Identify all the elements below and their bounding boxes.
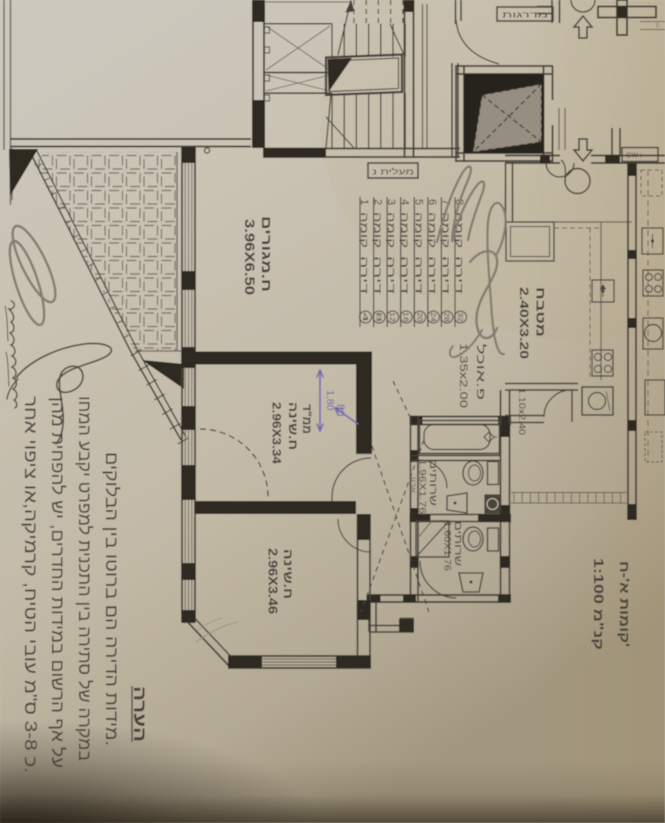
svg-text:דירה: דירה [453,256,464,295]
svg-text:24: 24 [429,312,438,322]
svg-text:קומה: קומה [399,212,410,248]
svg-text:דירה: דירה [358,256,369,295]
svg-text:GW ו: GW ו [626,153,642,160]
svg-text:ח.שינה: ח.שינה [281,549,295,599]
svg-text:קומה: קומה [426,212,437,248]
svg-text:ח.שינה: ח.שינה [286,402,300,450]
svg-text:ח.מגורים: ח.מגורים [259,216,274,292]
svg-text:5: 5 [412,199,424,205]
svg-text:במקרה של סתירה בין התכנית למפר: במקרה של סתירה בין התכנית למפרט יקבע המח… [75,396,95,761]
svg-text:2.96X3.46: 2.96X3.46 [266,548,280,614]
svg-text:דירה: דירה [439,256,450,295]
svg-text:מדרגות: מדרגות [502,11,548,20]
svg-text:הערה: הערה [130,686,149,742]
svg-text:4: 4 [361,312,370,322]
svg-text:80: 80 [334,404,346,416]
svg-text:דירה: דירה [426,256,437,295]
svg-text:קומה: קומה [358,212,369,248]
svg-text:פ.אוכל: פ.אוכל [474,344,488,400]
svg-text:2: 2 [372,199,384,205]
svg-text:1: 1 [358,199,370,205]
svg-text:דירה: דירה [372,256,383,295]
svg-text:3.96X6.50: 3.96X6.50 [242,219,257,295]
svg-text:4: 4 [399,199,411,205]
svg-text:c: c [656,22,660,29]
svg-text:כ 3-8 ס"מ עובי הטיח, קרמיקה,או: כ 3-8 ס"מ עובי הטיח, קרמיקה,או ציפוי אחר… [21,396,41,773]
svg-text:16: 16 [402,312,411,322]
svg-text:32: 32 [456,312,465,322]
svg-text:שרותים: שרותים [452,521,463,566]
svg-text:על אף הרשום במידות החדרים, יש: על אף הרשום במידות החדרים, יש להפחית מהן [48,397,68,768]
svg-text:דירה: דירה [399,256,410,295]
svg-text:1.60X1.76: 1.60X1.76 [442,521,453,571]
svg-text:קומה: קומה [412,212,423,248]
svg-text:קומות א'-ח': קומות א'-ח' [617,561,632,647]
svg-text:8: 8 [375,312,384,322]
svg-text:מידות הדירה הם ברוטו בין הבלוק: מידות הדירה הם ברוטו בין הבלוקים. [102,452,122,746]
svg-text:ארון: ארון [409,477,418,493]
svg-text:דירה: דירה [412,256,423,295]
svg-text:מטבח: מטבח [534,287,548,337]
svg-text:28: 28 [442,312,451,322]
svg-text:שרותים: שרותים [427,459,438,506]
svg-text:1:100 קנ"מ: 1:100 קנ"מ [591,558,606,650]
svg-text:דירה: דירה [385,256,396,295]
svg-text:קומה: קומה [372,212,383,248]
svg-text:קומה: קומה [385,212,396,248]
svg-text:מעלית נ: מעלית נ [372,168,414,177]
svg-text:3: 3 [385,199,397,205]
svg-text:ממ"ד: ממ"ד [300,404,314,434]
svg-text:6: 6 [426,199,438,205]
svg-text:1.10x2.40: 1.10x2.40 [516,388,527,435]
svg-text:12: 12 [388,312,397,322]
svg-text:20: 20 [415,312,424,322]
svg-text:2.96X3.34: 2.96X3.34 [270,402,284,464]
svg-text:2.40X3.20: 2.40X3.20 [517,287,531,359]
